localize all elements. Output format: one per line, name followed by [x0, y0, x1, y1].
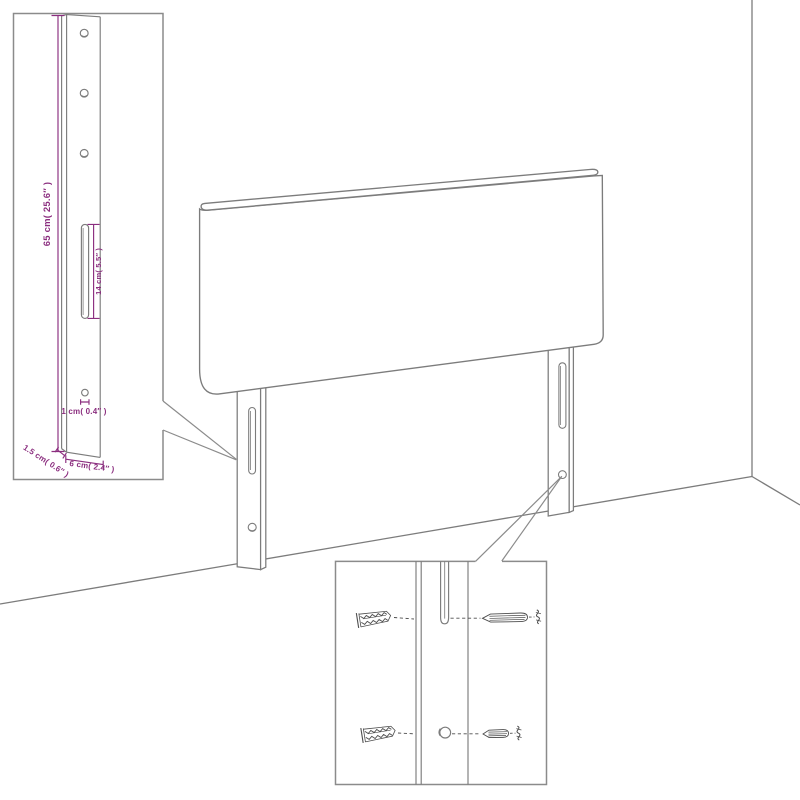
dim-hole-bracket	[81, 399, 89, 405]
leg-detail-inset: 65 cm( 25.6″ ) 14 cm( 5.5″ ) 1 cm( 0.4″ …	[14, 14, 164, 480]
leg-pin-hole	[82, 389, 89, 396]
leg-detail-callout-lines	[163, 401, 236, 460]
leg-slot	[81, 224, 88, 318]
wall-plug-icon-bottom	[361, 723, 396, 743]
screw-hole-2-shade	[82, 95, 87, 96]
dim-height-label: 65 cm( 25.6″ )	[42, 182, 53, 246]
screw-hole-1-shade	[82, 35, 87, 36]
dim-depth-label: 1.5 cm( 0.6″ )	[22, 443, 71, 479]
headboard-panel	[200, 169, 604, 394]
dim-slot-label: 14 cm( 5.5″ )	[94, 248, 103, 295]
panel-body	[200, 176, 604, 395]
callout-line-right	[502, 476, 562, 561]
leg-detail-artwork	[62, 15, 101, 458]
strut-round-hole	[440, 727, 451, 738]
callout-line-upper	[163, 401, 236, 459]
leg-top-edge	[62, 15, 101, 17]
screw-hole-3	[80, 150, 88, 158]
mounting-hardware	[356, 608, 541, 743]
left-mounting-leg	[237, 382, 266, 570]
mounting-detail-inset	[336, 561, 547, 784]
floor-line-left	[0, 477, 752, 605]
strut-round-hole-shade	[439, 729, 440, 736]
left-leg-side-face	[261, 382, 266, 570]
wall-plug-icon-top	[356, 608, 391, 628]
mounting-strut	[416, 561, 468, 784]
dim-width-label: 6 cm( 2.4″ )	[69, 459, 115, 474]
floor-line-right	[752, 477, 800, 506]
diagram-canvas: 65 cm( 25.6″ ) 14 cm( 5.5″ ) 1 cm( 0.4″ …	[0, 0, 800, 800]
screw-hole-3-shade	[82, 156, 87, 157]
screw-hole-2	[80, 89, 88, 97]
leg-bottom-edge	[62, 449, 101, 458]
callout-line-lower	[163, 430, 236, 460]
screw-icon-bottom	[483, 726, 522, 741]
screw-hole-1	[80, 29, 88, 37]
dim-height-line	[52, 16, 65, 452]
mounting-detail-callout-lines	[476, 476, 562, 561]
dim-hole-label: 1 cm( 0.4″ )	[61, 407, 106, 416]
alignment-dashes-plug-bottom	[398, 733, 414, 734]
callout-line-left	[476, 476, 562, 561]
alignment-dashes-plug-top	[394, 618, 414, 620]
headboard-diagram: 65 cm( 25.6″ ) 14 cm( 5.5″ ) 1 cm( 0.4″ …	[0, 0, 800, 800]
screw-icon-top	[482, 610, 541, 626]
right-leg-side-face	[569, 342, 573, 512]
dim-depth-line	[55, 447, 66, 459]
leg-dimensions: 65 cm( 25.6″ ) 14 cm( 5.5″ ) 1 cm( 0.4″ …	[22, 16, 116, 480]
